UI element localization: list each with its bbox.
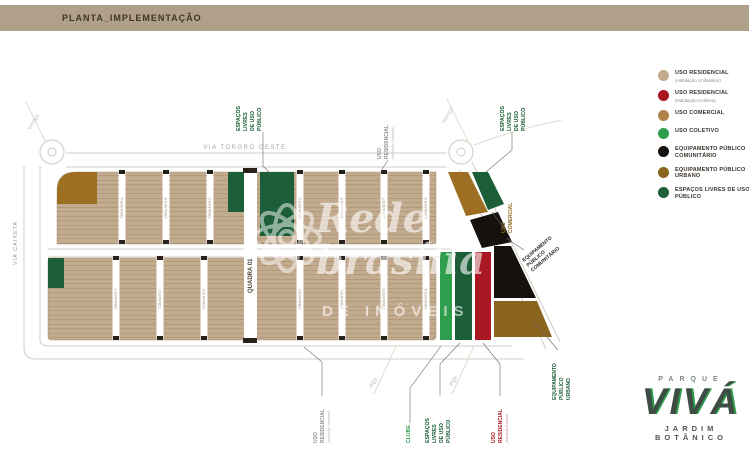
legend-swatch	[658, 110, 669, 121]
legend-swatch	[658, 128, 669, 139]
svg-text:(Habitação Unifamiliar): (Habitação Unifamiliar)	[327, 411, 331, 443]
svg-text:ESPAÇOS: ESPAÇOS	[500, 105, 506, 131]
annotation-uso-residencial-bottom: USO RESIDENCIAL (Habitação Unifamiliar)	[313, 409, 331, 443]
svg-text:CONJUNTO J: CONJUNTO J	[202, 289, 206, 310]
legend-item: EQUIPAMENTO PÚBLICO COMUNITÁRIO	[658, 146, 749, 160]
legend-swatch	[658, 167, 669, 178]
svg-text:USO: USO	[377, 148, 383, 159]
legend-item: USO COMERCIAL	[658, 110, 749, 121]
svg-text:PÚBLICO: PÚBLICO	[256, 108, 263, 131]
svg-text:LIVRES: LIVRES	[432, 424, 438, 443]
watermark-line2: brasília	[316, 237, 485, 284]
svg-text:DE USO: DE USO	[250, 111, 256, 131]
legend-item: USO RESIDENCIAL(Habitação Coletiva)	[658, 90, 749, 103]
svg-text:USO: USO	[501, 222, 507, 233]
road-label-pq2: VIA PQ2	[441, 107, 455, 125]
svg-text:LIVRES: LIVRES	[243, 112, 249, 131]
svg-text:PÚBLICO: PÚBLICO	[558, 377, 565, 400]
logo-jardim-botanico-text: JARDIM BOTÂNICO	[636, 424, 746, 442]
svg-text:RESIDENCIAL: RESIDENCIAL	[384, 125, 390, 159]
site-plan-page: PLANTA_IMPLEMENTAÇÃO	[0, 0, 749, 451]
legend-swatch	[658, 90, 669, 101]
block-equip-urbano	[494, 301, 552, 337]
legend-swatch	[658, 187, 669, 198]
project-logo: PARQUE VIVÁ JARDIM BOTÂNICO	[636, 376, 746, 442]
legend-item: USO RESIDENCIAL(Habitação Unifamiliar)	[658, 70, 749, 83]
annotation-clube: CLUBE	[406, 425, 412, 443]
svg-text:CONJUNTO C: CONJUNTO C	[208, 197, 212, 219]
annotation-espacos-bottom: ESPAÇOS LIVRES DE USO PÚBLICO	[425, 417, 452, 443]
svg-text:PÚBLICO: PÚBLICO	[445, 420, 452, 443]
road-label-tororo: VIA TORORÓ OESTE	[203, 144, 286, 151]
svg-text:USO: USO	[313, 432, 319, 443]
svg-text:EQUIPAMENTO: EQUIPAMENTO	[552, 363, 558, 400]
svg-text:PÚBLICO: PÚBLICO	[520, 108, 527, 131]
svg-text:COMERCIAL: COMERCIAL	[508, 203, 514, 233]
svg-text:USO: USO	[491, 432, 497, 443]
annotation-uso-comercial: USO COMERCIAL	[501, 203, 514, 233]
legend-swatch	[658, 70, 669, 81]
svg-text:ESPAÇOS: ESPAÇOS	[425, 417, 431, 443]
watermark-line3: DE IMÓVEIS	[322, 302, 470, 320]
road-label-quadra: QUADRA 01	[248, 258, 254, 293]
legend-item: EQUIPAMENTO PÚBLICO URBANO	[658, 167, 749, 181]
road-label-caixeta: VIA CAIXETA	[13, 221, 19, 265]
svg-text:CONJUNTO A: CONJUNTO A	[120, 197, 124, 218]
block-espacos-small-row1	[228, 172, 244, 212]
roundabout-east	[449, 140, 473, 164]
svg-text:CLUBE: CLUBE	[406, 425, 412, 443]
svg-text:ESPAÇOS: ESPAÇOS	[236, 105, 242, 131]
logo-viva-text: VIVÁ	[636, 383, 746, 422]
legend-item: USO COLETIVO	[658, 128, 749, 139]
svg-text:RESIDENCIAL: RESIDENCIAL	[320, 409, 326, 443]
svg-text:DE USO: DE USO	[439, 423, 445, 443]
watermark-line1: Rede	[315, 195, 428, 242]
svg-text:URBANO: URBANO	[566, 378, 572, 400]
legend-swatch	[658, 146, 669, 157]
svg-text:(Habitação Unifamiliar): (Habitação Unifamiliar)	[391, 127, 395, 159]
svg-text:(Habitação Coletiva): (Habitação Coletiva)	[505, 414, 509, 443]
svg-text:CONJUNTO B: CONJUNTO B	[164, 198, 168, 219]
quadra-road	[244, 170, 257, 342]
annotation-uso-residencial-coletiva: USO RESIDENCIAL (Habitação Coletiva)	[491, 409, 509, 443]
roundabout-west	[40, 140, 64, 164]
road-cap	[243, 338, 257, 343]
svg-text:CONJUNTO K: CONJUNTO K	[298, 288, 302, 310]
svg-text:RESIDENCIAL: RESIDENCIAL	[498, 409, 504, 443]
block-espacos-row2-left	[48, 258, 64, 288]
annotation-uso-residencial-top: USO RESIDENCIAL (Habitação Unifamiliar)	[377, 125, 395, 159]
road-cap	[243, 168, 257, 173]
annotation-espacos-top-left: ESPAÇOS LIVRES DE USO PÚBLICO	[236, 105, 263, 131]
annotation-equip-comunitario: EQUIPAMENTO PÚBLICO COMUNITÁRIO	[521, 235, 561, 273]
svg-text:CONJUNTO H: CONJUNTO H	[114, 288, 118, 310]
svg-text:CONJUNTO I: CONJUNTO I	[158, 289, 162, 309]
annotation-espacos-top-right: ESPAÇOS LIVRES DE USO PÚBLICO	[500, 105, 527, 131]
svg-text:DE USO: DE USO	[514, 111, 520, 131]
svg-text:LIVRES: LIVRES	[507, 112, 513, 131]
block-comercial-corner	[57, 172, 97, 204]
legend-item: ESPAÇOS LIVRES DE USO PÚBLICO	[658, 187, 749, 201]
annotation-equip-urbano: EQUIPAMENTO PÚBLICO URBANO	[552, 363, 572, 400]
legend: USO RESIDENCIAL(Habitação Unifamiliar) U…	[658, 70, 749, 201]
